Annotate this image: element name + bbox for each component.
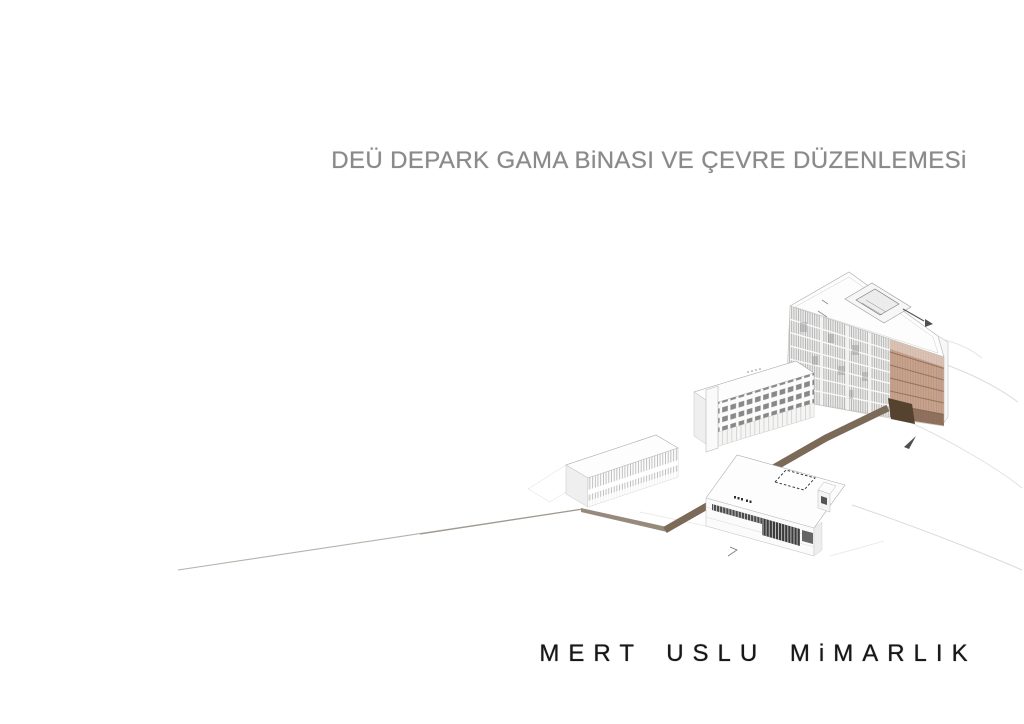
roof-mark: [734, 496, 736, 499]
pilaster: [868, 332, 871, 414]
courtyard-building: [706, 455, 845, 556]
roof-dot: [755, 369, 757, 371]
corner-tick-mark: [728, 547, 737, 556]
window-patch: [862, 372, 868, 381]
contour-line: [852, 505, 1022, 570]
mid-building: [694, 361, 814, 452]
walkway-lower-segment: [581, 508, 667, 532]
presentation-page: DEÜ DEPARK GAMA BiNASI VE ÇEVRE DÜZENLEM…: [0, 0, 1024, 724]
roof-dot: [759, 368, 761, 370]
contour-line: [945, 340, 982, 358]
roof-mark: [746, 500, 748, 503]
courtyard-end-sliver: [814, 522, 822, 556]
direction-arrow-mark: [904, 436, 916, 449]
window-patch: [800, 322, 807, 332]
roof-dot: [747, 371, 749, 373]
contour-line: [938, 362, 1018, 402]
roof-mark: [741, 498, 743, 501]
site-axonometric-illustration: [0, 0, 1024, 724]
window-patch: [828, 334, 834, 343]
roof-mark: [750, 501, 752, 504]
window-patch: [838, 366, 845, 375]
site-plan-svg: [0, 0, 1024, 724]
brand-signature: MERT USLU MiMARLIK: [539, 640, 976, 668]
mid-stair-tower: [706, 386, 718, 452]
contour-line: [905, 420, 1022, 488]
roof-mark: [738, 497, 740, 500]
low-building: [528, 435, 678, 507]
window-patch: [852, 345, 859, 355]
window-patch: [812, 356, 818, 365]
pilaster: [820, 316, 823, 406]
road-line-dark: [420, 509, 583, 534]
gama-roof-triangle-mark: [925, 319, 933, 327]
roof-dot: [751, 370, 753, 372]
pilaster: [846, 325, 849, 411]
